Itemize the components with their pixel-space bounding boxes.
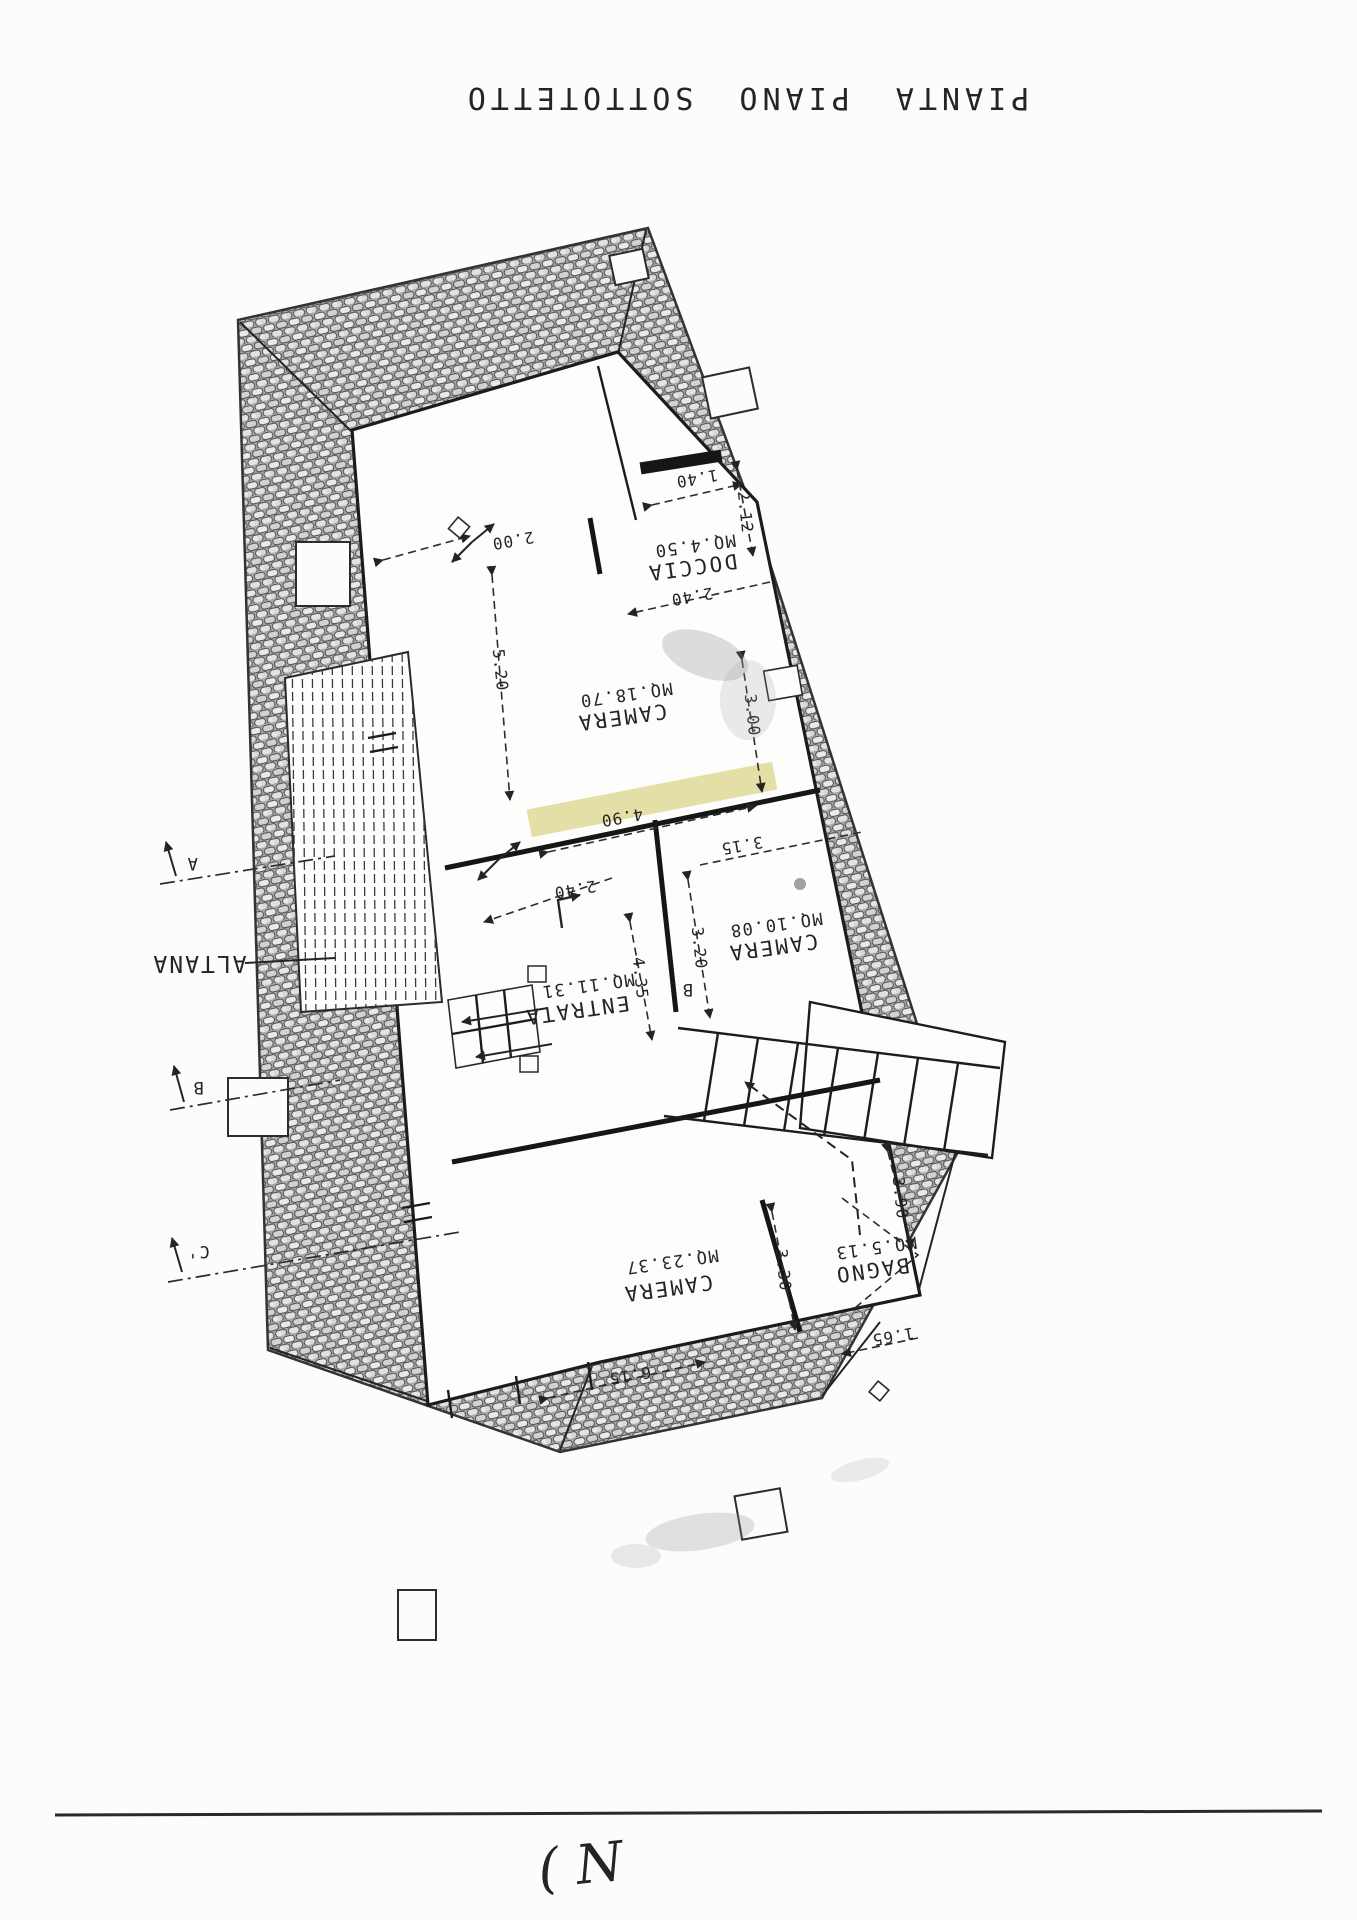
chimney	[609, 249, 648, 285]
scanned-floorplan-page: A B C' ALTANA B MQ.4.50 DOCCIA MQ.18.70 …	[0, 0, 1357, 1920]
dim-1-65: 1.65	[870, 1323, 915, 1349]
wall-recess	[296, 542, 350, 606]
floorplan-drawing: A B C' ALTANA B MQ.4.50 DOCCIA MQ.18.70 …	[0, 0, 1357, 1920]
handwritten-note: ( N	[535, 1829, 628, 1901]
footer-rule	[55, 1811, 1322, 1815]
interior-section-letter-b: B	[683, 979, 693, 999]
altana-label: ALTANA	[151, 950, 246, 976]
section-letter-b: B	[192, 1077, 204, 1097]
chimney	[398, 1590, 436, 1640]
diamond-symbol	[869, 1381, 889, 1401]
section-letter-c: C'	[186, 1241, 209, 1261]
page-title: PIANTA PIANO SOTTOTETTO	[463, 80, 1029, 115]
section-letter-a: A	[186, 853, 198, 873]
footer: ( N	[55, 1811, 1322, 1901]
wall-recess	[228, 1078, 288, 1136]
chimney	[702, 367, 758, 418]
